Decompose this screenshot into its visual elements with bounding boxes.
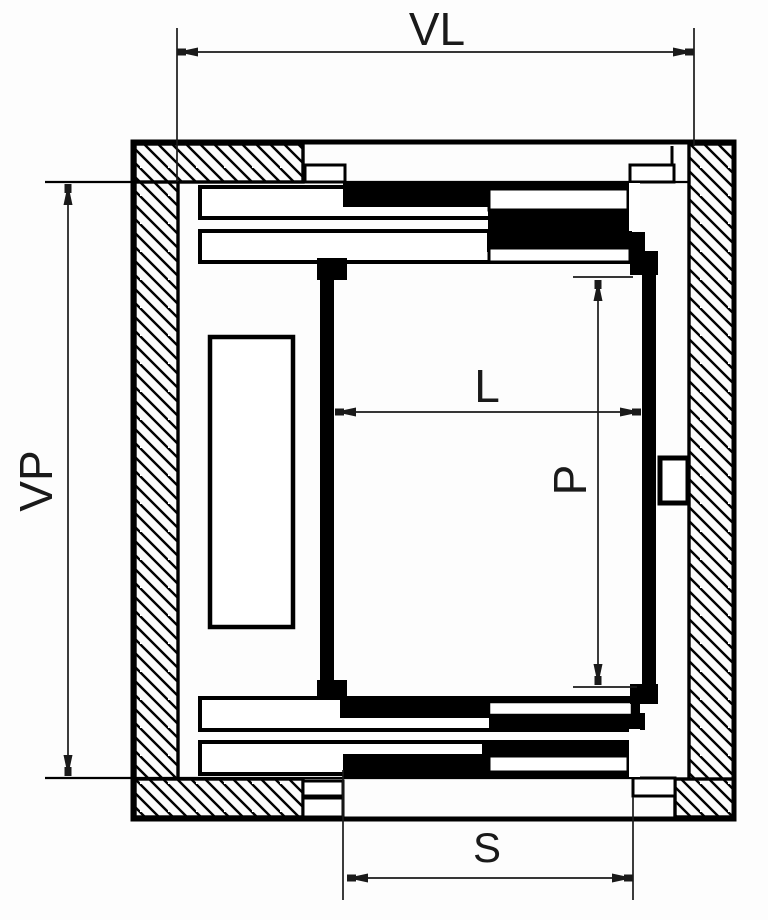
top-door-assembly — [200, 182, 645, 262]
dim-label-s: S — [473, 824, 501, 871]
p-arrow-bottom-tip — [595, 676, 602, 685]
bottom-door-assembly — [200, 698, 645, 778]
bottom-jamb-right — [633, 778, 675, 796]
plan-view-svg: VL VP L P S — [0, 0, 768, 920]
wall-left — [135, 144, 178, 817]
shaft-equipment — [210, 337, 688, 627]
wall-bottom-right — [675, 779, 734, 817]
s-arrow-left-tip — [347, 875, 356, 882]
top-car-panel-inset — [489, 248, 630, 262]
top-jamb-left — [305, 165, 345, 182]
dim-label-l: L — [474, 360, 500, 412]
top-door-end-slot — [629, 183, 640, 231]
bottom-landing-panel-inset — [489, 756, 628, 772]
wall-right — [689, 144, 734, 817]
wall-mounted-box — [660, 458, 688, 503]
bottom-jamb-left-lower — [303, 798, 343, 817]
top-jamb-right — [630, 165, 674, 182]
top-landing-panel-inset — [489, 189, 628, 210]
elevator-car — [317, 251, 658, 704]
vl-arrow-left-tip — [177, 49, 186, 56]
vp-arrow-bottom-tip — [65, 767, 72, 776]
car-corner-top-left — [317, 258, 347, 280]
elevator-shaft-plan-drawing: VL VP L P S — [0, 0, 768, 920]
bottom-jamb-left-upper — [303, 781, 343, 796]
car-corner-bottom-left — [317, 680, 347, 700]
l-arrow-left-tip — [335, 409, 344, 416]
wall-bottom-left — [135, 779, 303, 817]
car-wall-right — [642, 254, 656, 703]
dim-label-vl: VL — [409, 3, 465, 55]
vp-arrow-top-tip — [65, 184, 72, 193]
s-arrow-right-tip — [624, 875, 633, 882]
bottom-car-panel-inset — [489, 702, 632, 715]
p-arrow-top-tip — [595, 280, 602, 289]
vl-arrow-right-tip — [685, 49, 694, 56]
car-wall-left — [320, 258, 334, 698]
l-arrow-right-tip — [632, 409, 641, 416]
bottom-door-end-slot — [629, 729, 640, 777]
dim-label-p: P — [544, 465, 596, 496]
wall-top-left — [135, 144, 303, 182]
counterweight-box — [210, 337, 293, 627]
car-corner-top-right — [630, 251, 658, 275]
dim-label-vp: VP — [10, 450, 62, 511]
dimension-vp — [64, 184, 73, 776]
